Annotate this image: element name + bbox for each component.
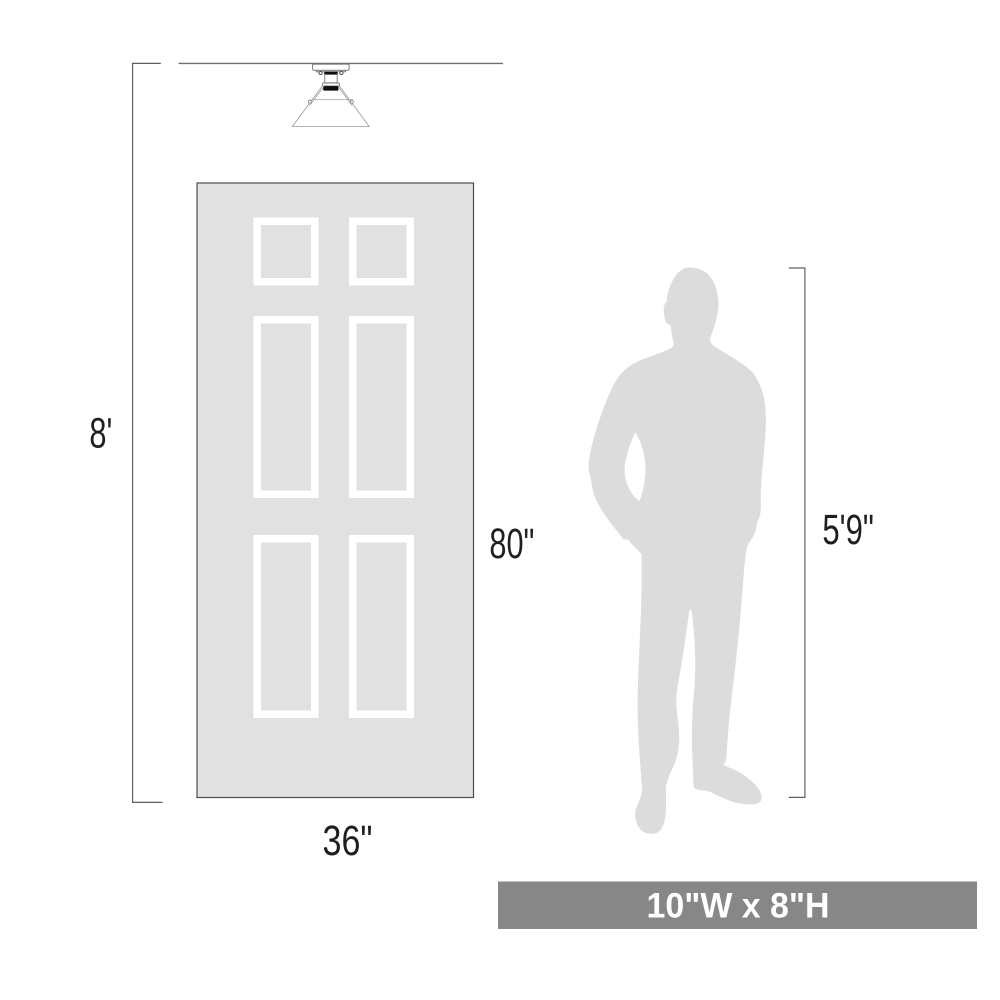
svg-text:5'9": 5'9": [822, 507, 874, 554]
svg-text:80": 80": [489, 521, 534, 568]
svg-text:36": 36": [323, 818, 373, 865]
svg-text:8': 8': [89, 411, 112, 458]
svg-text:10"W x 8"H: 10"W x 8"H: [647, 887, 830, 926]
